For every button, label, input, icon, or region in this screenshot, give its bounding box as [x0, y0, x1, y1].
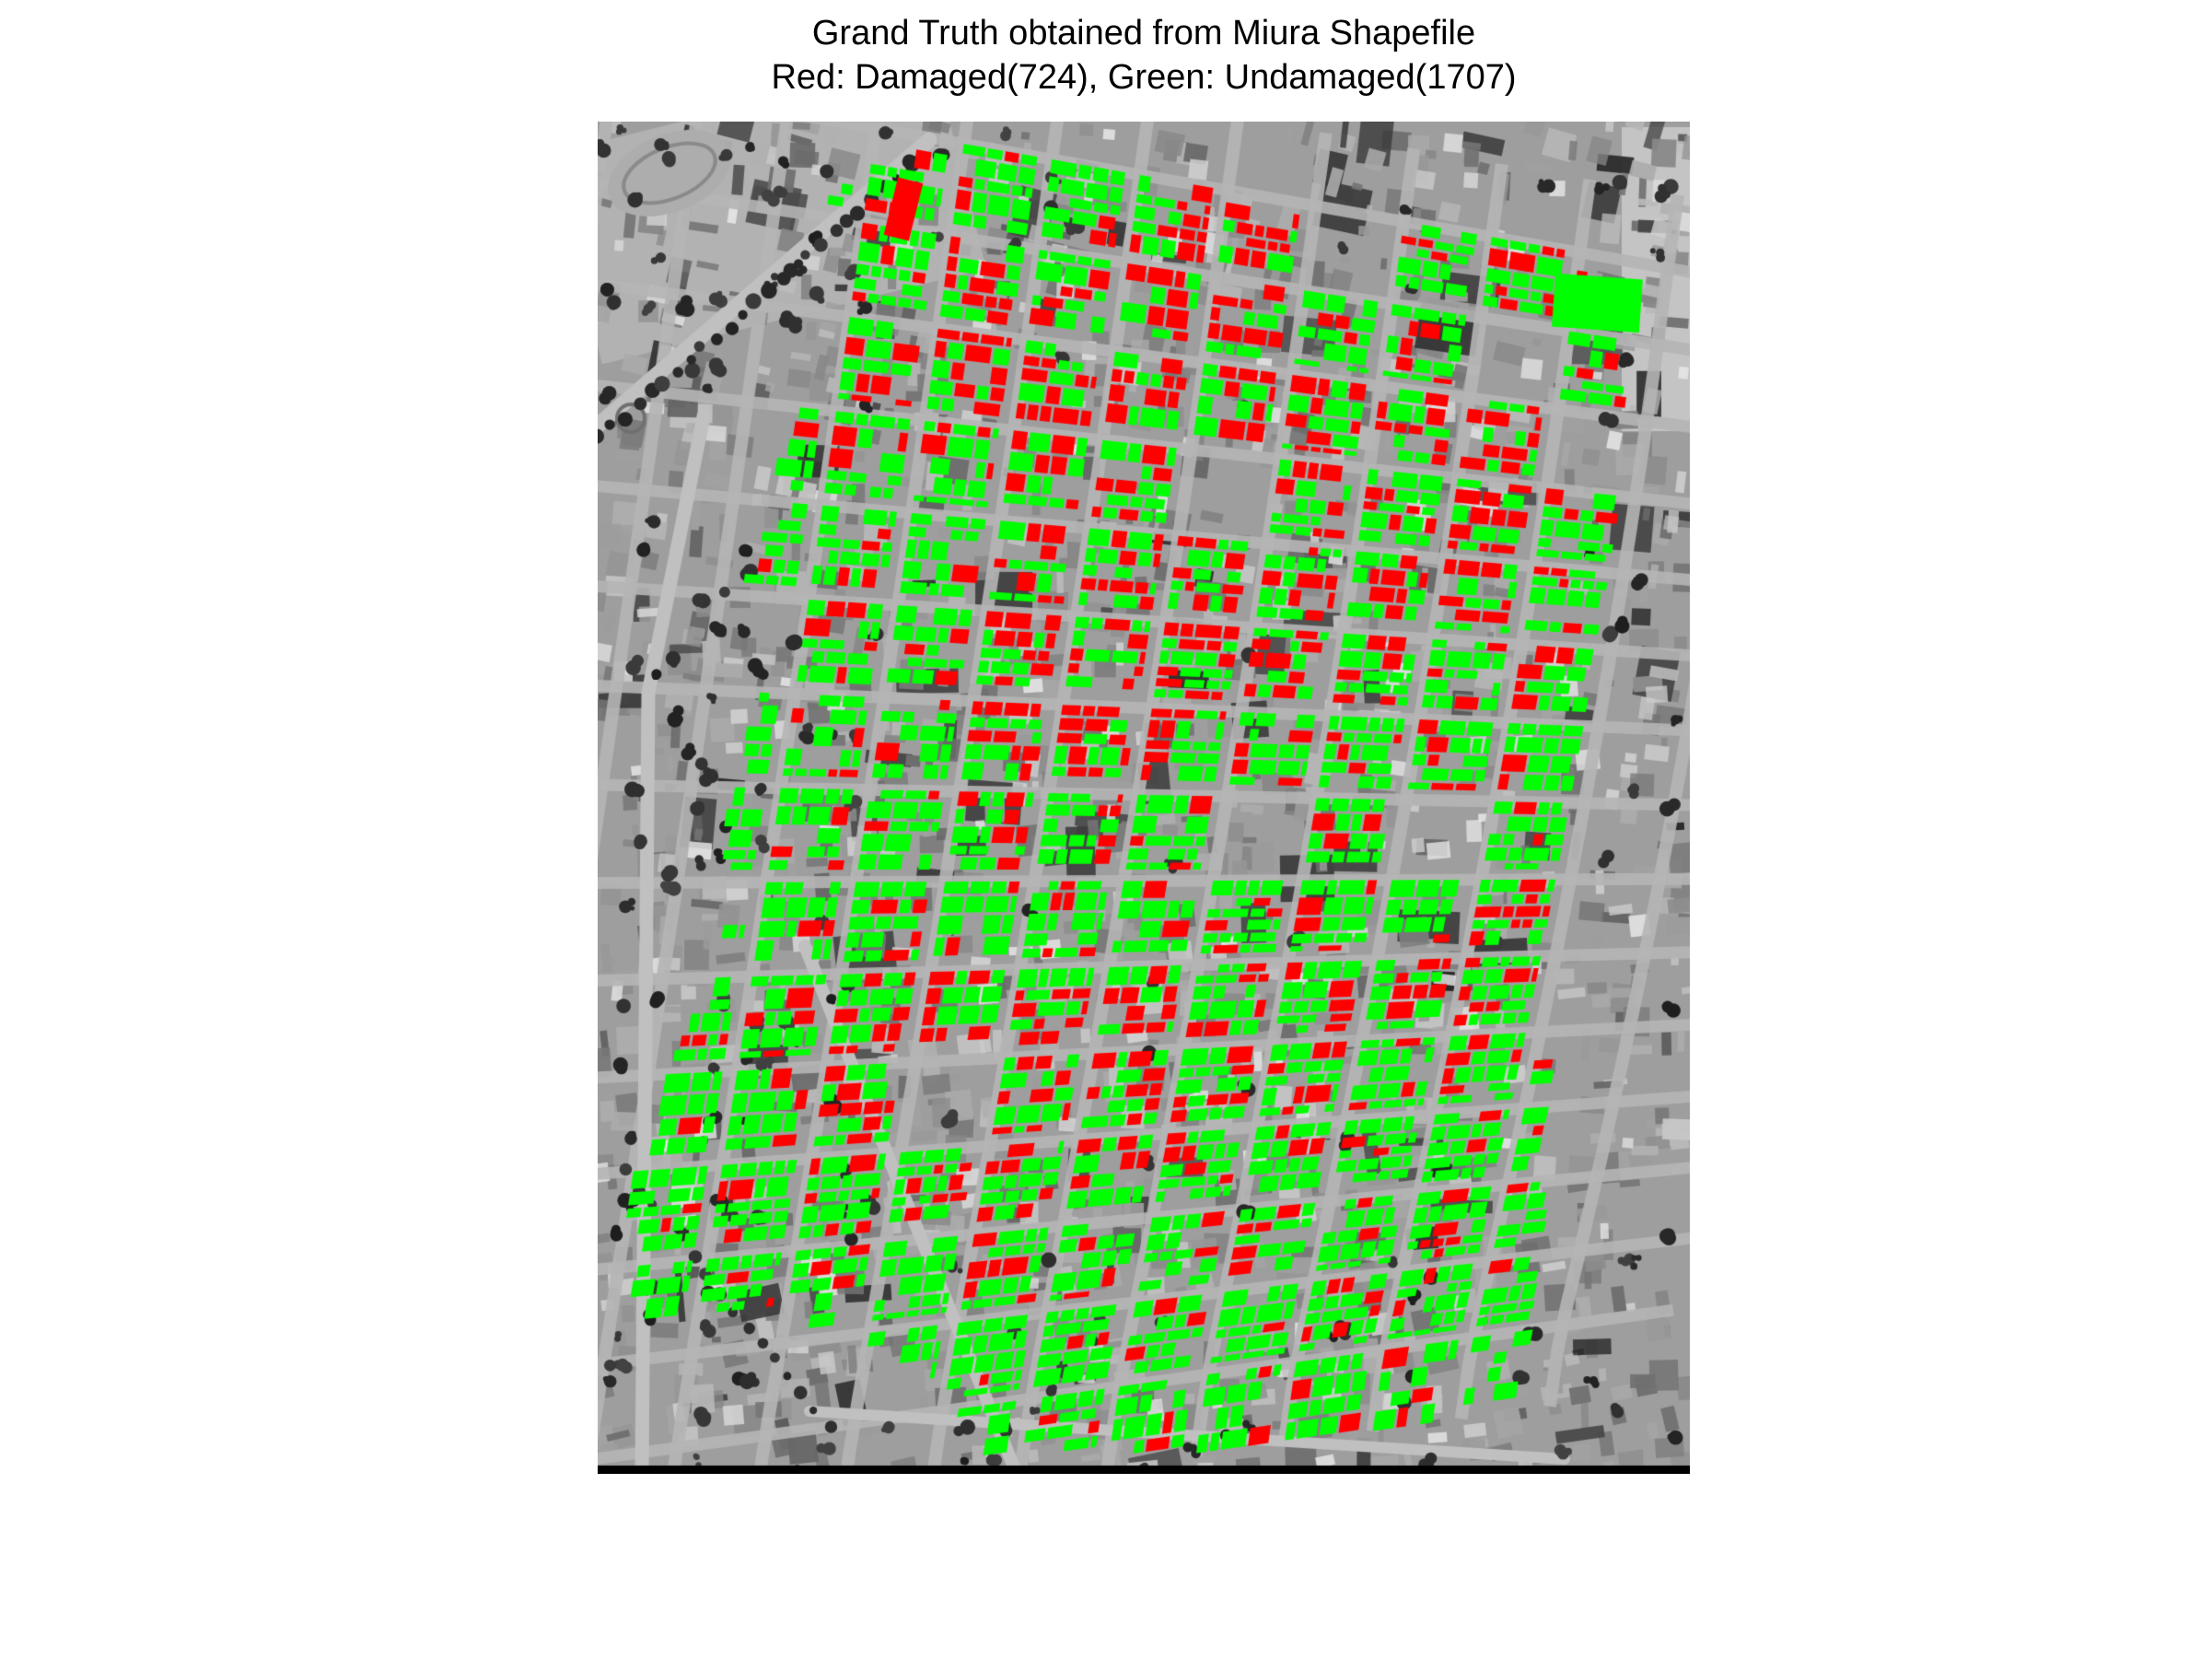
figure-title: Grand Truth obtained from Miura Shapefil… [598, 11, 1690, 99]
figure-title-line1: Grand Truth obtained from Miura Shapefil… [598, 11, 1690, 55]
figure-page: Grand Truth obtained from Miura Shapefil… [0, 0, 2212, 1659]
satellite-image-canvas [598, 122, 1690, 1474]
figure-title-line2: Red: Damaged(724), Green: Undamaged(1707… [598, 55, 1690, 99]
